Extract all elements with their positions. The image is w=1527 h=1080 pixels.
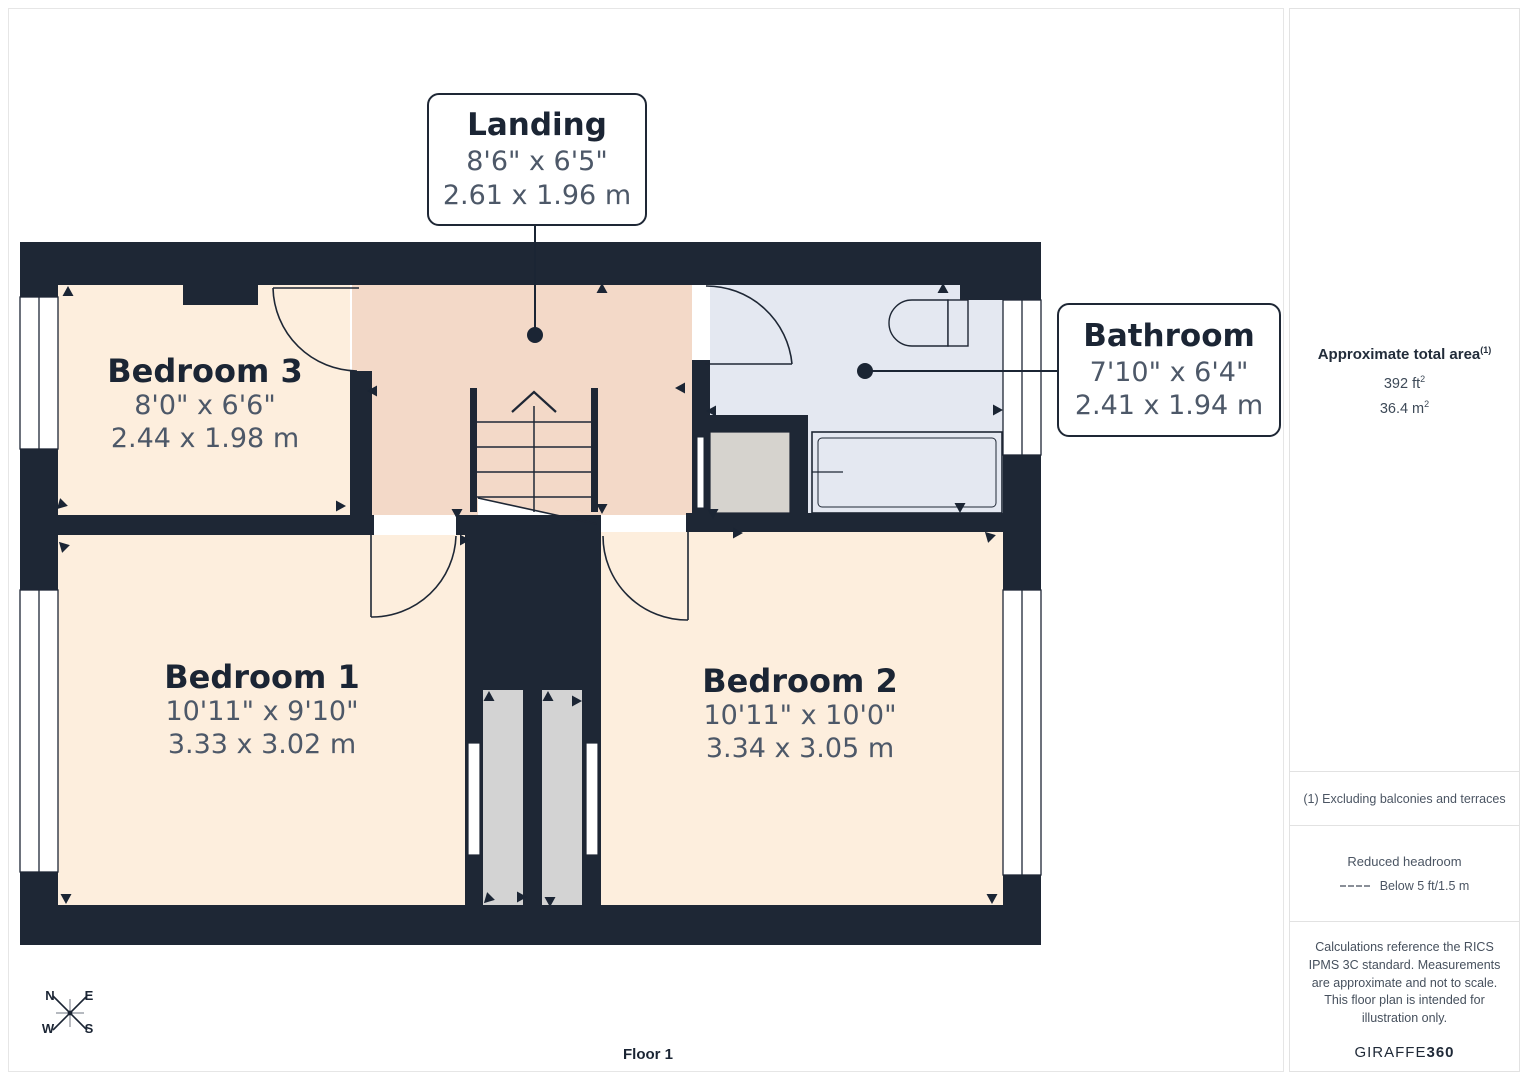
room-dim-imperial: 10'11" x 9'10" <box>164 696 360 729</box>
total-area-metric-value: 36.4 m <box>1380 401 1424 417</box>
reduced-headroom-legend: Below 5 ft/1.5 m <box>1380 879 1470 893</box>
floor-name-label: Floor 1 <box>588 1046 708 1063</box>
compass-south-label: S <box>81 1021 97 1036</box>
room-name: Landing <box>429 106 645 145</box>
bedroom2-label: Bedroom 2 10'11" x 10'0" 3.34 x 3.05 m <box>702 662 898 766</box>
brand-name: GIRAFFE <box>1354 1044 1426 1061</box>
reduced-headroom-title: Reduced headroom <box>1347 854 1461 869</box>
imperial-superscript: 2 <box>1420 374 1425 384</box>
footnote-text: (1) Excluding balconies and terraces <box>1303 792 1505 806</box>
room-dim-metric: 2.41 x 1.94 m <box>1059 389 1279 423</box>
cupboard-floor <box>710 432 790 513</box>
brand-suffix: 360 <box>1426 1044 1454 1061</box>
room-dim-imperial: 8'6" x 6'5" <box>429 145 645 179</box>
landing-callout: Landing 8'6" x 6'5" 2.61 x 1.96 m <box>427 93 647 226</box>
bedroom3-label: Bedroom 3 8'0" x 6'6" 2.44 x 1.98 m <box>107 352 303 456</box>
total-area-imperial: 392 ft2 <box>1384 372 1425 397</box>
bathroom-callout: Bathroom 7'10" x 6'4" 2.41 x 1.94 m <box>1057 303 1281 437</box>
footnote-marker: (1) <box>1480 345 1491 355</box>
dashed-line-swatch <box>1340 885 1370 887</box>
bathroom-leader-dot <box>857 363 873 379</box>
room-dim-metric: 3.33 x 3.02 m <box>164 729 360 762</box>
room-dim-metric: 2.61 x 1.96 m <box>429 179 645 213</box>
brand-logo: GIRAFFE360 <box>1307 1042 1502 1063</box>
room-dim-imperial: 10'11" x 10'0" <box>702 700 898 733</box>
reduced-headroom-legend-section: Reduced headroom Below 5 ft/1.5 m <box>1290 825 1519 921</box>
total-area-imperial-value: 392 ft <box>1384 376 1420 392</box>
room-name: Bathroom <box>1059 317 1279 356</box>
total-area-title: Approximate total area(1) <box>1318 345 1492 363</box>
room-name: Bedroom 2 <box>702 662 898 700</box>
room-dim-metric: 2.44 x 1.98 m <box>107 423 303 456</box>
room-name: Bedroom 3 <box>107 352 303 390</box>
disclaimer-text: Calculations reference the RICS IPMS 3C … <box>1307 939 1502 1028</box>
bedroom1-label: Bedroom 1 10'11" x 9'10" 3.33 x 3.02 m <box>164 658 360 762</box>
compass-east-label: E <box>81 988 97 1003</box>
toilet-fixture <box>889 300 968 346</box>
footnote-section: (1) Excluding balconies and terraces <box>1290 771 1519 825</box>
total-area-title-text: Approximate total area <box>1318 346 1481 363</box>
landing-leader-dot <box>527 327 543 343</box>
room-dim-imperial: 7'10" x 6'4" <box>1059 356 1279 390</box>
compass-west-label: W <box>40 1021 56 1036</box>
room-name: Bedroom 1 <box>164 658 360 696</box>
compass-north-label: N <box>42 988 58 1003</box>
metric-superscript: 2 <box>1424 400 1429 410</box>
reduced-headroom-row: Below 5 ft/1.5 m <box>1340 879 1470 893</box>
disclaimer-section: Calculations reference the RICS IPMS 3C … <box>1290 921 1519 1071</box>
total-area-metric: 36.4 m2 <box>1380 397 1429 422</box>
room-dim-metric: 3.34 x 3.05 m <box>702 733 898 766</box>
landing-floor <box>352 285 692 515</box>
info-sidebar: Approximate total area(1) 392 ft2 36.4 m… <box>1289 8 1520 1072</box>
total-area-section: Approximate total area(1) 392 ft2 36.4 m… <box>1290 9 1519 771</box>
bathtub-fixture <box>812 432 1002 513</box>
room-dim-imperial: 8'0" x 6'6" <box>107 390 303 423</box>
